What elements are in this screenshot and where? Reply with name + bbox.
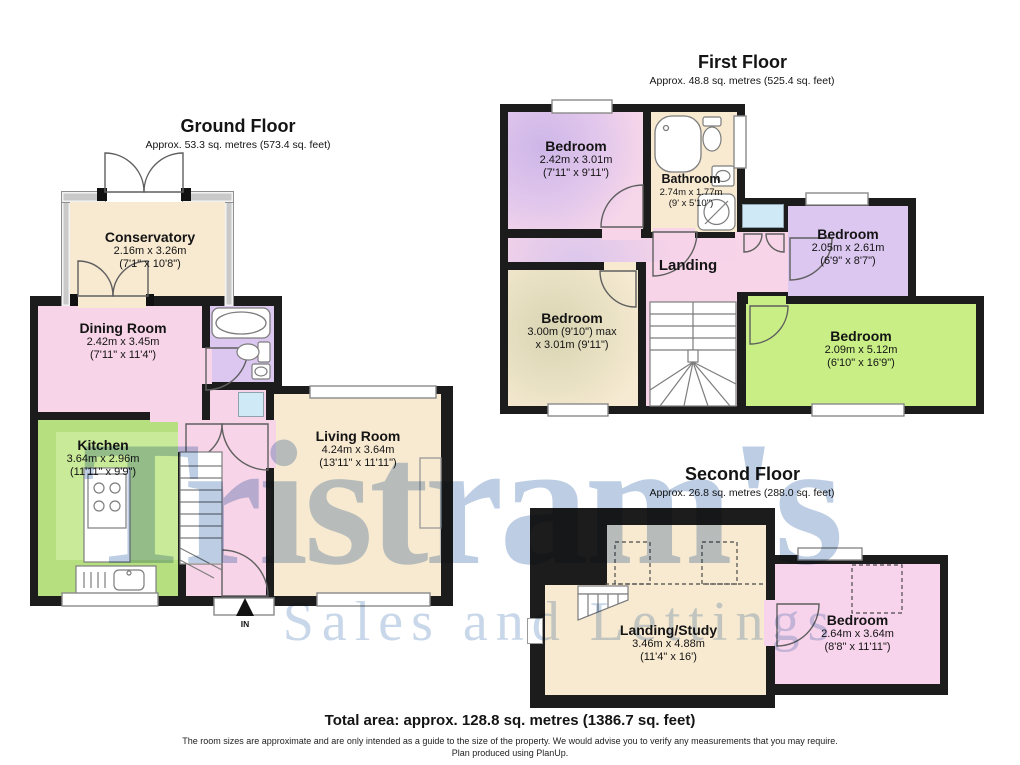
first-floor-title: First Floor (600, 52, 885, 73)
room-dim-ft: (8'8" x 11'11") (785, 641, 930, 654)
room-dim-ft: (11'4" x 16') (596, 651, 741, 664)
room-name: Bedroom (788, 226, 908, 242)
room-dim-ft: x 3.01m (9'11") (502, 339, 642, 352)
door-opening (748, 296, 786, 306)
room-dim-ft: (7'11" x 11'4") (68, 349, 178, 362)
room-dim-ft: (11'11" x 9'9") (40, 466, 166, 479)
room-dim-ft: (6'9" x 8'7") (788, 255, 908, 268)
room-label: Bedroom 2.09m x 5.12m (6'10" x 16'9") (786, 328, 936, 370)
room-dim-m: 2.64m x 3.64m (785, 628, 930, 641)
window-bay (238, 392, 264, 417)
room-dim-ft: (13'11" x 11'11") (303, 457, 413, 470)
room-label: Bedroom 3.00m (9'10") max x 3.01m (9'11"… (502, 310, 642, 352)
room-label: Bedroom 2.42m x 3.01m (7'11" x 9'11") (508, 138, 644, 180)
door-jamb (181, 188, 191, 201)
room-label: Conservatory 2.16m x 3.26m (7'1" x 10'8"… (85, 229, 215, 271)
room-dim-m: 3.00m (9'10") max (502, 326, 642, 339)
door-opening (264, 420, 276, 468)
door-opening (200, 348, 212, 384)
door-opening (178, 420, 186, 452)
room-name: Landing (628, 257, 748, 274)
room-name: Bedroom (508, 138, 644, 154)
room-label: Living Room 4.24m x 3.64m (13'11" x 11'1… (303, 428, 413, 470)
room-dim-m: 2.74m x 1.77m (647, 187, 735, 198)
room-dim-m: 3.64m x 2.96m (40, 453, 166, 466)
entrance-label: IN (232, 619, 258, 629)
ground-floor-title: Ground Floor (98, 116, 378, 137)
door-opening (602, 227, 641, 240)
door-jamb (97, 188, 107, 201)
room-landing-study (607, 525, 766, 585)
room-dim-m: 2.16m x 3.26m (85, 245, 215, 258)
room-name: Conservatory (85, 229, 215, 245)
room-dim-ft: (7'1" x 10'8") (85, 258, 215, 271)
door-opening (150, 410, 202, 422)
room-dim-ft: (9' x 5'10") (647, 198, 735, 209)
room-label: Bedroom 2.64m x 3.64m (8'8" x 11'11") (785, 612, 930, 654)
door-opening (653, 228, 695, 240)
room-label: Kitchen 3.64m x 2.96m (11'11" x 9'9") (40, 437, 166, 479)
left-wall-window (527, 618, 543, 644)
conservatory-wall (225, 192, 233, 306)
room-name: Living Room (303, 428, 413, 444)
conservatory-wall (62, 192, 70, 306)
door-opening (764, 600, 777, 646)
second-floor-subtitle: Approx. 26.8 sq. metres (288.0 sq. feet) (587, 487, 897, 499)
room-label: Dining Room 2.42m x 3.45m (7'11" x 11'4"… (68, 320, 178, 362)
room-dim-ft: (6'10" x 16'9") (786, 357, 936, 370)
room-name: Landing/Study (596, 622, 741, 638)
door-opening (78, 294, 146, 308)
window-bay (742, 204, 784, 228)
total-area-text: Total area: approx. 128.8 sq. metres (13… (0, 712, 1020, 729)
room-dim-m: 2.42m x 3.01m (508, 154, 644, 167)
room-living (274, 394, 441, 596)
room-name: Bedroom (502, 310, 642, 326)
room-dim-m: 2.42m x 3.45m (68, 336, 178, 349)
second-floor-title: Second Floor (600, 464, 885, 485)
room-gf-bathroom (210, 306, 274, 382)
produced-by-text: Plan produced using PlanUp. (0, 748, 1020, 758)
hallway (186, 420, 266, 596)
first-floor-subtitle: Approx. 48.8 sq. metres (525.4 sq. feet) (587, 75, 897, 87)
disclaimer-text: The room sizes are approximate and are o… (0, 736, 1020, 746)
room-dim-m: 2.09m x 5.12m (786, 344, 936, 357)
room-dim-m: 3.46m x 4.88m (596, 638, 741, 651)
room-name: Kitchen (40, 437, 166, 453)
room-name: Bathroom (647, 172, 735, 187)
room-dim-m: 2.05m x 2.61m (788, 242, 908, 255)
room-label: Landing (628, 257, 748, 274)
room-name: Bedroom (786, 328, 936, 344)
room-dim-ft: (7'11" x 9'11") (508, 167, 644, 180)
room-dim-m: 4.24m x 3.64m (303, 444, 413, 457)
floorplan-canvas: Ground Floor Approx. 53.3 sq. metres (57… (0, 0, 1020, 765)
room-label: Landing/Study 3.46m x 4.88m (11'4" x 16'… (596, 622, 741, 664)
room-name: Bedroom (785, 612, 930, 628)
ground-floor-subtitle: Approx. 53.3 sq. metres (573.4 sq. feet) (83, 139, 393, 151)
room-label: Bedroom 2.05m x 2.61m (6'9" x 8'7") (788, 226, 908, 268)
room-name: Dining Room (68, 320, 178, 336)
room-landing (646, 262, 737, 406)
room-label: Bathroom 2.74m x 1.77m (9' x 5'10") (647, 172, 735, 209)
